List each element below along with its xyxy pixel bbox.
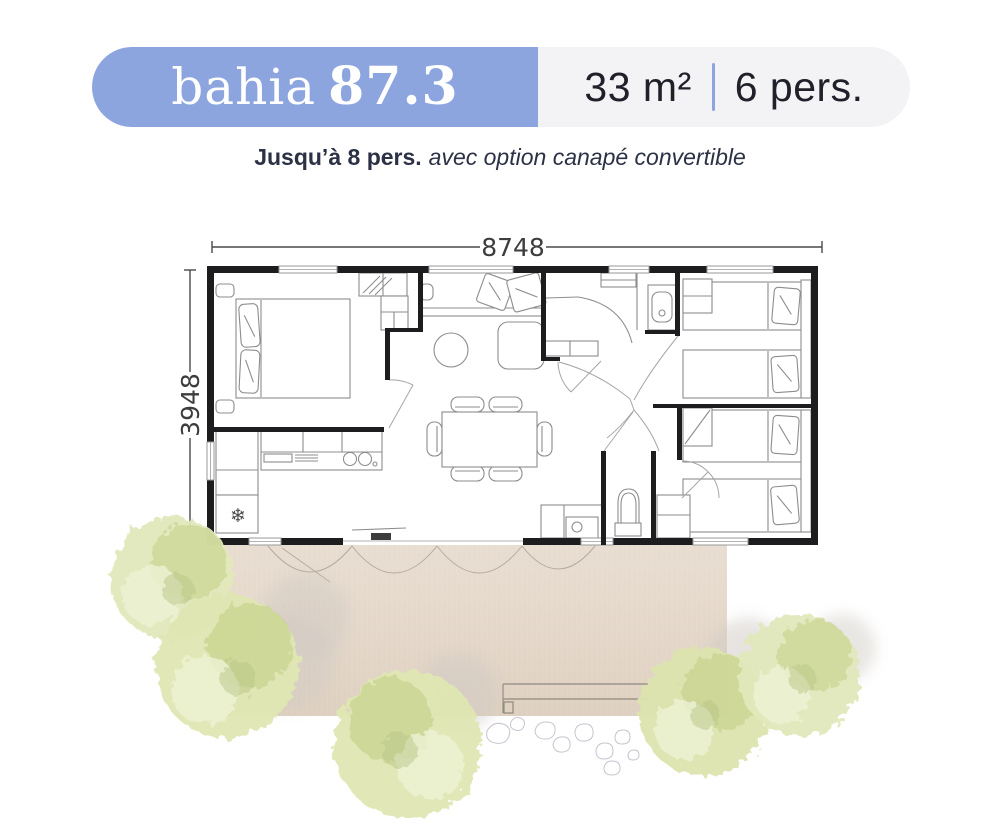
armchair bbox=[498, 322, 544, 369]
tree-3 bbox=[334, 670, 482, 818]
width-label: 8748 bbox=[481, 233, 545, 262]
tree-5 bbox=[738, 614, 860, 736]
page: bahia 87.3 33 m² 6 pers. Jusqu’à 8 pers.… bbox=[0, 0, 1000, 833]
water-heater bbox=[572, 522, 582, 532]
fridge-snowflake-icon: ❄ bbox=[230, 505, 246, 527]
depth-label: 3948 bbox=[176, 373, 205, 437]
dimension-depth: 3948 bbox=[176, 270, 205, 540]
tree-2 bbox=[155, 594, 299, 738]
dining-table bbox=[442, 412, 537, 467]
floor-plan: ❄ bbox=[0, 0, 1000, 833]
sliding-door-leaf bbox=[371, 533, 391, 540]
dimension-width: 8748 bbox=[212, 233, 822, 262]
side-table bbox=[434, 333, 468, 367]
toilet-tank bbox=[615, 523, 641, 536]
pebbles bbox=[487, 718, 639, 776]
